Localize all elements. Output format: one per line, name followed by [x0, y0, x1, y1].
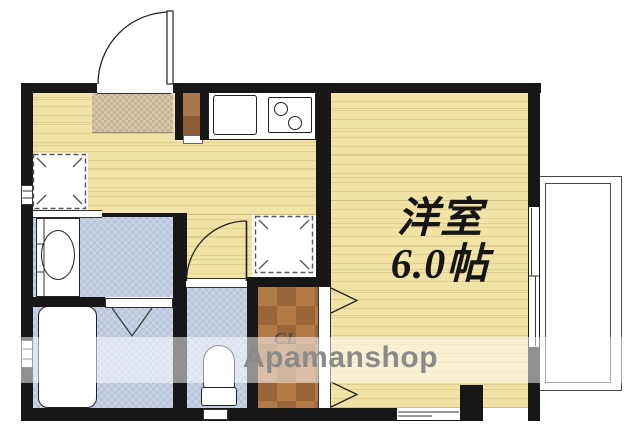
entrance-door-icon — [98, 11, 173, 84]
corridor-floor — [187, 215, 252, 283]
toilet-tank-icon — [201, 387, 237, 406]
laundry-space — [33, 153, 88, 213]
stove-burner-icon — [274, 102, 288, 116]
closet-top-wall — [247, 277, 330, 287]
room-left-wall — [316, 83, 331, 287]
bathroom-door-bar — [105, 298, 173, 308]
kitchen-sink-icon — [213, 95, 257, 135]
room-label: 洋室 6.0帖 — [355, 196, 525, 288]
shoe-cabinet — [183, 93, 200, 135]
washroom-doorway — [33, 210, 102, 218]
top-wall-main — [173, 83, 541, 93]
washroom-bath-wall — [21, 297, 105, 307]
hall-washroom-partition — [102, 213, 173, 217]
entry-stub-wall — [200, 93, 208, 140]
window-room-right — [529, 207, 539, 347]
window-room-bottom — [397, 408, 460, 420]
window-toilet — [203, 409, 228, 420]
stove-burner-icon — [288, 116, 302, 130]
room-corner-pillar — [460, 385, 483, 408]
entrance-threshold — [97, 84, 171, 94]
entry-mat — [92, 93, 173, 133]
room-size-text: 6.0帖 — [355, 242, 525, 288]
room-name-text: 洋室 — [355, 196, 525, 242]
window-left-small — [21, 185, 33, 205]
refrigerator-space — [252, 215, 316, 277]
floor-plan: 洋室 6.0帖 CL — [0, 0, 640, 424]
entry-stub-wall — [175, 93, 183, 140]
toilet-doorway — [186, 278, 247, 288]
watermark-text: Apamanshop — [243, 341, 438, 375]
washbasin-icon — [41, 230, 75, 280]
